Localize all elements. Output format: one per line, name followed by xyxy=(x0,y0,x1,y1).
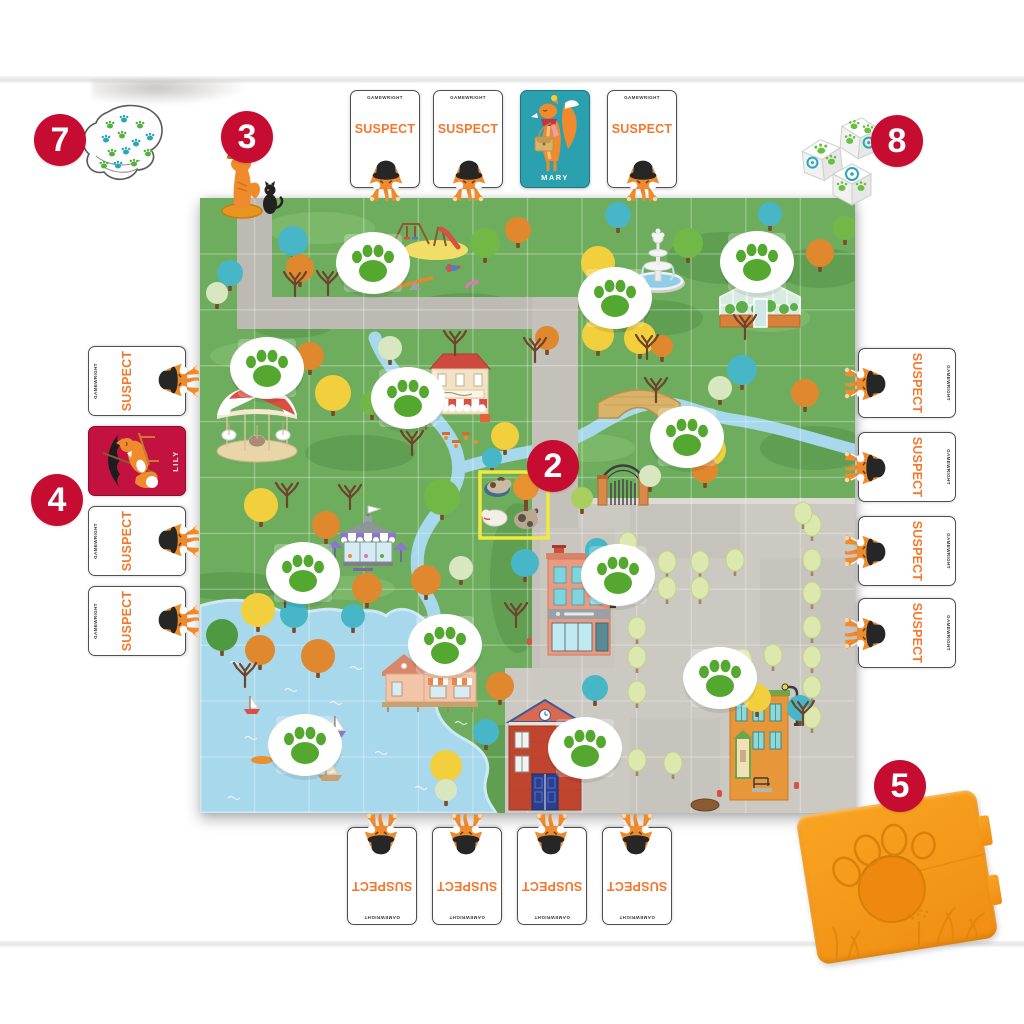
suspect-card-facedown[interactable]: GAMEWRIGHT SUSPECT xyxy=(517,827,587,925)
suspect-label: SUSPECT xyxy=(120,347,134,415)
rulebook-setup-diagram: 7 3 8 4 2 5 xyxy=(0,0,1024,1024)
step-3-badge: 3 xyxy=(221,111,273,163)
gamewright-logo: GAMEWRIGHT xyxy=(93,347,98,415)
printed-cat-figure xyxy=(263,181,282,214)
suspect-label: SUSPECT xyxy=(120,507,134,575)
card-name-label: MARY xyxy=(520,173,590,182)
suspect-card-facedown[interactable]: GAMEWRIGHT SUSPECT xyxy=(433,90,503,188)
suspect-card-facedown[interactable]: GAMEWRIGHT SUSPECT xyxy=(602,827,672,925)
gamewright-logo: GAMEWRIGHT xyxy=(93,507,98,575)
suspect-card-facedown[interactable]: GAMEWRIGHT SUSPECT xyxy=(88,346,186,416)
suspect-card-facedown[interactable]: GAMEWRIGHT SUSPECT xyxy=(350,90,420,188)
suspect-label: SUSPECT xyxy=(910,517,924,585)
gamewright-logo: GAMEWRIGHT xyxy=(946,433,951,501)
suspect-card-facedown[interactable]: GAMEWRIGHT SUSPECT xyxy=(607,90,677,188)
clue-spot[interactable] xyxy=(371,367,445,433)
dirt-patch xyxy=(691,799,719,811)
revealed-card-mary[interactable]: MARY xyxy=(520,90,590,188)
suspect-label: SUSPECT xyxy=(910,349,924,417)
clue-spot[interactable] xyxy=(408,614,482,680)
fox-hat-icon xyxy=(365,159,407,189)
gamewright-logo: GAMEWRIGHT xyxy=(518,915,586,920)
clue-spot[interactable] xyxy=(720,231,794,297)
fox-hat-icon xyxy=(157,519,187,561)
suspect-card-facedown[interactable]: GAMEWRIGHT SUSPECT xyxy=(858,432,956,502)
suspect-label: SUSPECT xyxy=(603,879,671,893)
step-2-badge: 2 xyxy=(527,440,579,492)
fox-hat-icon xyxy=(857,363,887,405)
suspect-label: SUSPECT xyxy=(433,879,501,893)
fox-hat-icon xyxy=(448,159,490,189)
clue-spot[interactable] xyxy=(548,717,622,783)
gamewright-logo: GAMEWRIGHT xyxy=(946,349,951,417)
clue-spot[interactable] xyxy=(268,714,342,780)
gamewright-logo: GAMEWRIGHT xyxy=(433,915,501,920)
gamewright-logo: GAMEWRIGHT xyxy=(946,599,951,667)
suspect-label: SUSPECT xyxy=(608,122,676,136)
card-name-label: LILY xyxy=(171,426,180,496)
suspect-card-facedown[interactable]: GAMEWRIGHT SUSPECT xyxy=(347,827,417,925)
suspect-card-facedown[interactable]: GAMEWRIGHT SUSPECT xyxy=(858,348,956,418)
clue-spot[interactable] xyxy=(266,542,340,608)
fox-hat-icon xyxy=(622,159,664,189)
suspect-card-facedown[interactable]: GAMEWRIGHT SUSPECT xyxy=(88,506,186,576)
fox-hat-icon xyxy=(530,826,572,856)
gamewright-logo: GAMEWRIGHT xyxy=(351,95,419,100)
step-7-badge: 7 xyxy=(34,114,86,166)
gamewright-logo: GAMEWRIGHT xyxy=(434,95,502,100)
suspect-card-facedown[interactable]: GAMEWRIGHT SUSPECT xyxy=(88,586,186,656)
game-board xyxy=(200,198,855,813)
suspect-label: SUSPECT xyxy=(120,587,134,655)
fox-hat-icon xyxy=(157,599,187,641)
clue-spot[interactable] xyxy=(230,337,304,403)
step-8-badge: 8 xyxy=(871,115,923,167)
step-4-badge: 4 xyxy=(31,474,83,526)
clue-token-pile[interactable] xyxy=(78,100,172,194)
suspect-label: SUSPECT xyxy=(351,122,419,136)
clue-spot[interactable] xyxy=(336,232,410,298)
fox-hat-icon xyxy=(445,826,487,856)
fox-hat-icon xyxy=(360,826,402,856)
gamewright-logo: GAMEWRIGHT xyxy=(603,915,671,920)
clue-spot[interactable] xyxy=(683,647,757,713)
suspect-card-facedown[interactable]: GAMEWRIGHT SUSPECT xyxy=(432,827,502,925)
revealed-card-lily[interactable]: LILY xyxy=(88,426,186,496)
step-5-badge: 5 xyxy=(874,760,926,812)
fox-hat-icon xyxy=(857,531,887,573)
suspect-card-facedown[interactable]: GAMEWRIGHT SUSPECT xyxy=(858,598,956,668)
suspect-label: SUSPECT xyxy=(518,879,586,893)
fox-hat-icon xyxy=(157,359,187,401)
suspect-label: SUSPECT xyxy=(434,122,502,136)
suspect-label: SUSPECT xyxy=(348,879,416,893)
clue-spot[interactable] xyxy=(578,267,652,333)
fox-hat-icon xyxy=(857,447,887,489)
gamewright-logo: GAMEWRIGHT xyxy=(348,915,416,920)
suspect-label: SUSPECT xyxy=(910,599,924,667)
fox-hat-icon xyxy=(857,613,887,655)
suspect-label: SUSPECT xyxy=(910,433,924,501)
clue-decoder-tray[interactable] xyxy=(795,789,998,966)
fox-hat-icon xyxy=(615,826,657,856)
gamewright-logo: GAMEWRIGHT xyxy=(93,587,98,655)
gamewright-logo: GAMEWRIGHT xyxy=(946,517,951,585)
clue-spot[interactable] xyxy=(650,406,724,472)
tray-embossing xyxy=(795,789,998,966)
gamewright-logo: GAMEWRIGHT xyxy=(608,95,676,100)
suspect-card-facedown[interactable]: GAMEWRIGHT SUSPECT xyxy=(858,516,956,586)
clue-spot[interactable] xyxy=(581,544,655,610)
